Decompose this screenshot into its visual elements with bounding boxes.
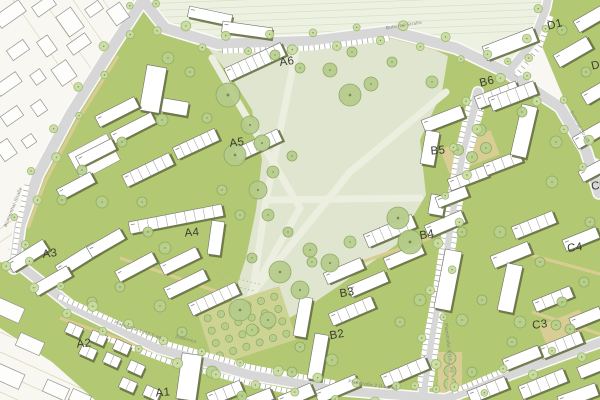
site-plan-canvas [0,0,600,400]
site-plan-map: A1A2A3A4A5A6B2B3B4B5B6C3C4C5D1D2Butterta… [0,0,600,400]
